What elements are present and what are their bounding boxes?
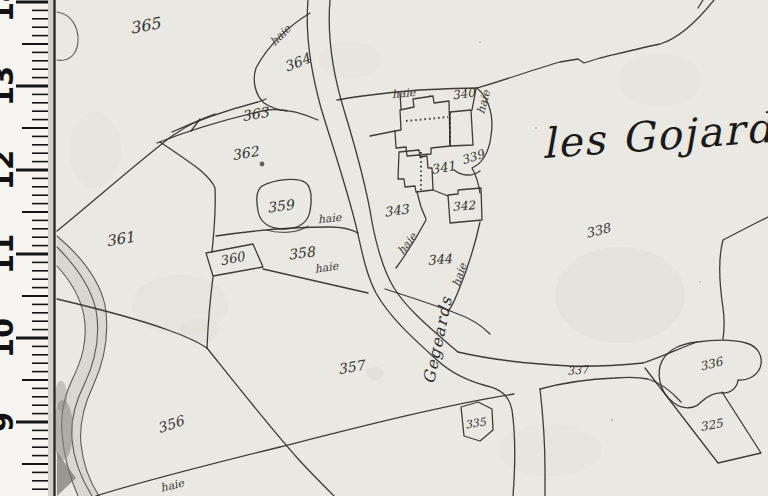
parcel-label-342: 342 <box>452 198 477 214</box>
ruler-number-13: 13 <box>0 66 20 106</box>
hedge-label-1: haie <box>391 86 417 102</box>
parcel-label-344: 344 <box>427 251 454 268</box>
ruler-number-9: 9 <box>0 412 20 432</box>
ruler-number-12: 12 <box>0 150 20 190</box>
ruler-shadow <box>48 0 54 496</box>
map-svg: les Gojards Gegeards 3653643633623613603… <box>0 0 768 496</box>
ruler: 14131211109 <box>0 0 55 496</box>
ruler-number-10: 10 <box>0 318 20 358</box>
cadastral-map-scan: les Gojards Gegeards 3653643633623613603… <box>0 0 768 496</box>
parcel-label-337: 337 <box>567 363 591 378</box>
ruler-number-11: 11 <box>0 234 20 274</box>
ruler-number-14: 14 <box>0 0 20 22</box>
hedge-label-3: haie <box>317 211 343 227</box>
